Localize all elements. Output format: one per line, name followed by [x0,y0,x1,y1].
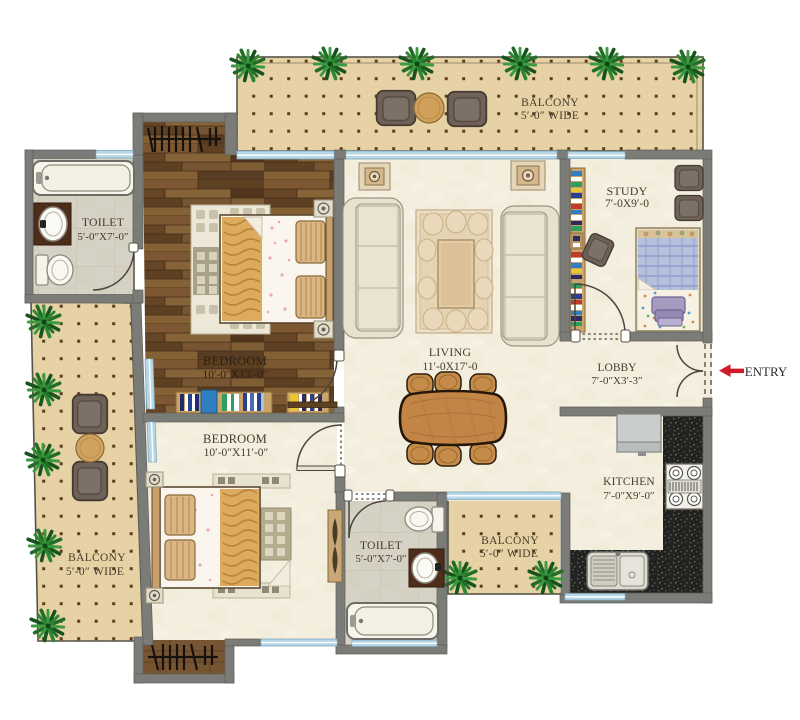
svg-text:LIVING: LIVING [429,345,472,359]
svg-text:BEDROOM: BEDROOM [203,432,267,446]
svg-text:5′-0″ WIDE: 5′-0″ WIDE [66,566,124,578]
svg-text:TOILET: TOILET [82,215,125,229]
svg-text:10′-0″X11′-0″: 10′-0″X11′-0″ [204,447,269,459]
svg-text:BALCONY: BALCONY [521,97,579,109]
svg-text:11′-0X17′-0: 11′-0X17′-0 [422,361,477,373]
svg-text:STUDY: STUDY [606,184,647,198]
svg-text:10′-0″X13′-0″: 10′-0″X13′-0″ [202,369,267,381]
svg-text:5′-0″ WIDE: 5′-0″ WIDE [480,548,538,560]
svg-text:BEDROOM: BEDROOM [203,354,267,368]
svg-text:BALCONY: BALCONY [481,535,539,547]
svg-text:5′-0″ WIDE: 5′-0″ WIDE [521,110,579,122]
svg-text:TOILET: TOILET [360,538,403,552]
svg-text:BALCONY: BALCONY [68,552,126,564]
svg-text:5′-0″X7′-0″: 5′-0″X7′-0″ [355,553,406,565]
svg-text:7′-0″X9′-0″: 7′-0″X9′-0″ [603,490,654,502]
svg-text:5′-0″X7′-0″: 5′-0″X7′-0″ [77,231,128,243]
svg-text:ENTRY: ENTRY [745,364,788,379]
svg-text:LOBBY: LOBBY [598,362,638,374]
svg-text:7′-0″X3′-3″: 7′-0″X3′-3″ [591,375,642,387]
svg-text:KITCHEN: KITCHEN [603,476,655,488]
svg-text:7′-0X9′-0: 7′-0X9′-0 [605,198,649,210]
